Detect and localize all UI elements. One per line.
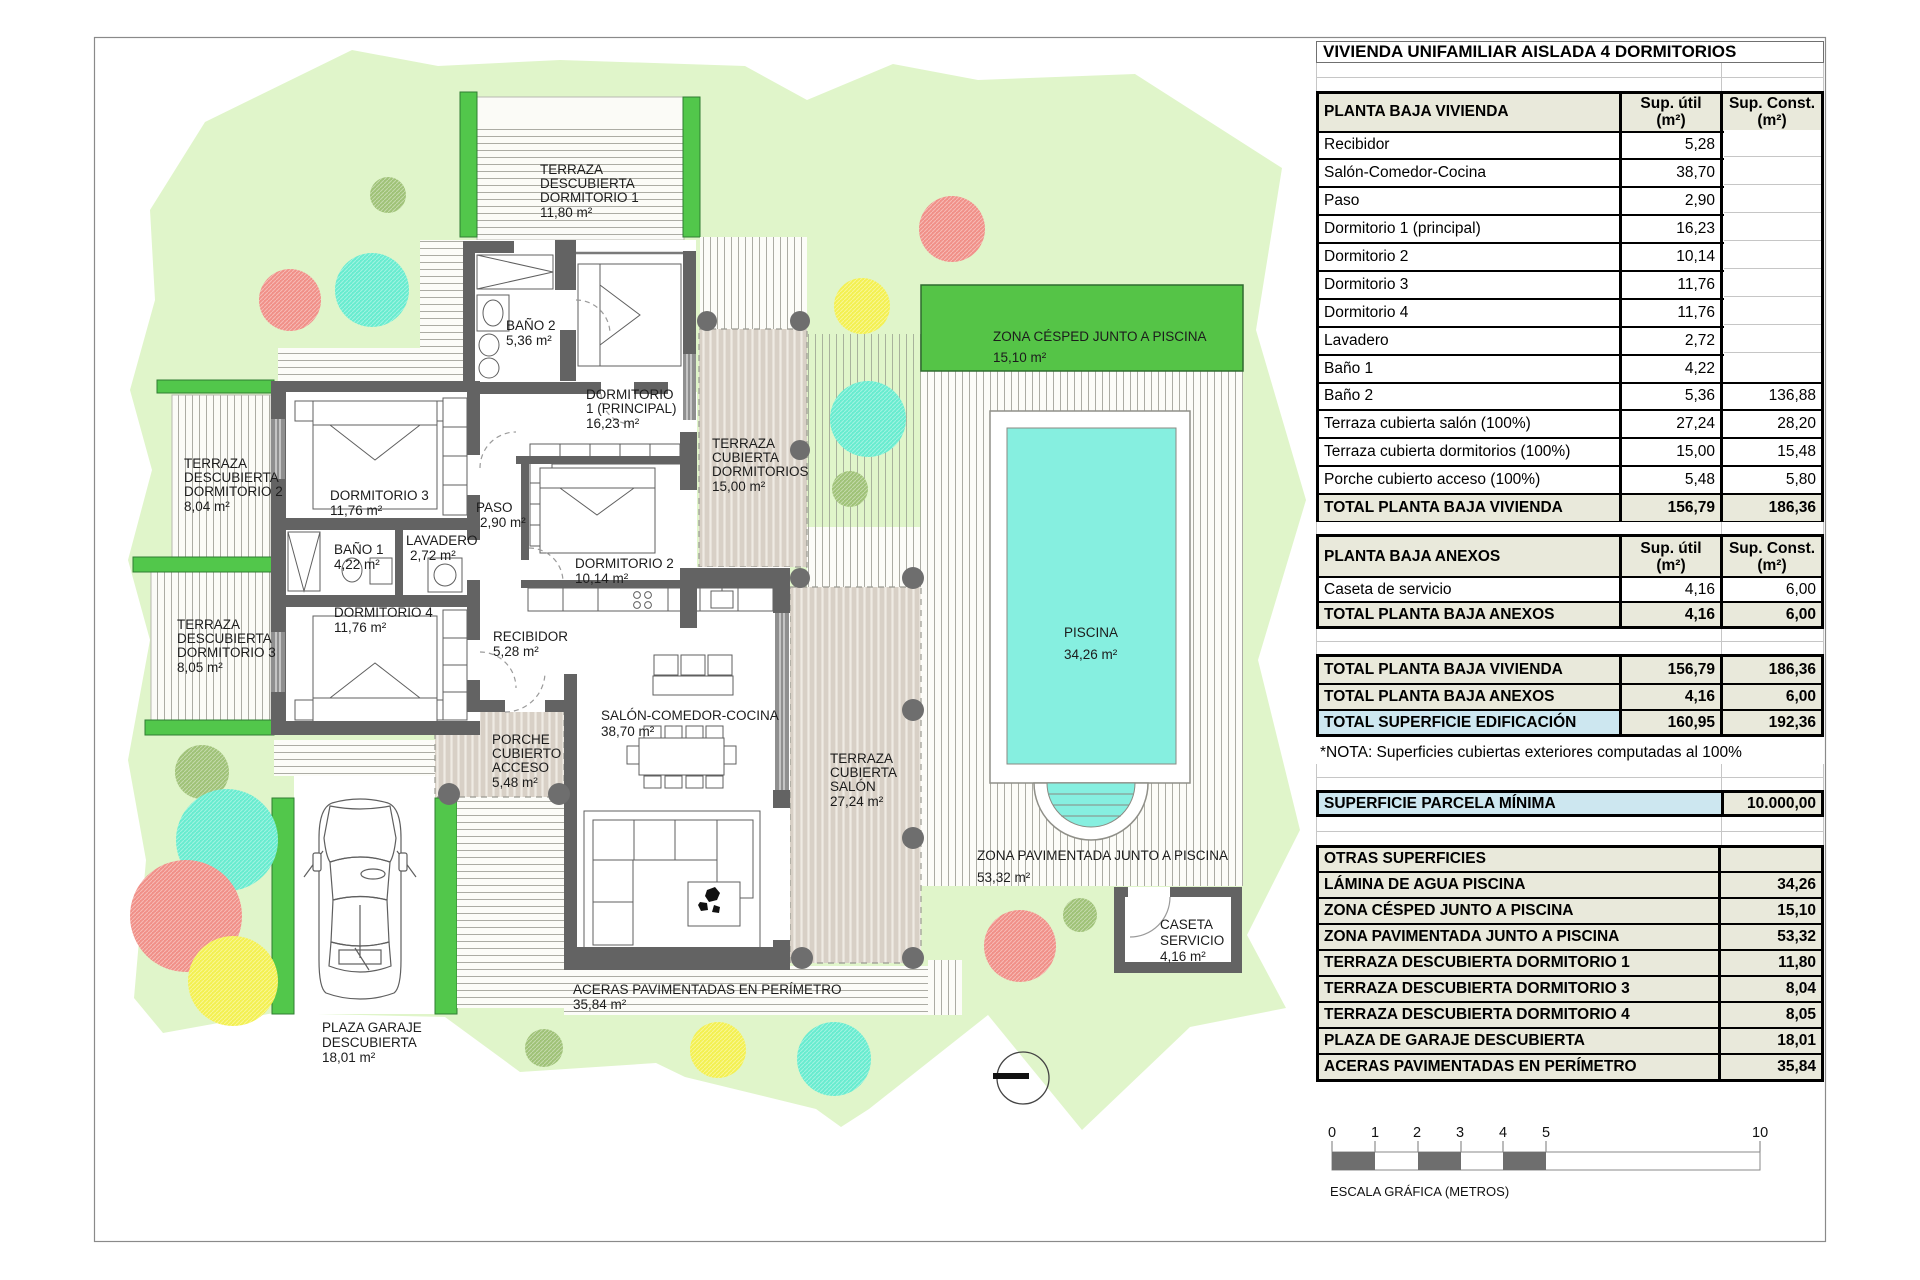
- svg-text:LAVADERO: LAVADERO: [406, 533, 478, 548]
- svg-text:ZONA CÉSPED JUNTO A PISCINA: ZONA CÉSPED JUNTO A PISCINA: [993, 329, 1207, 344]
- svg-text:2,90 m²: 2,90 m²: [480, 515, 526, 530]
- svg-text:2: 2: [1413, 1125, 1421, 1141]
- svg-text:15,10 m²: 15,10 m²: [993, 350, 1047, 365]
- svg-text:PLAZA GARAJE: PLAZA GARAJE: [322, 1020, 422, 1035]
- svg-text:ESCALA GRÁFICA (METROS): ESCALA GRÁFICA (METROS): [1330, 1184, 1509, 1199]
- svg-text:TERRAZA: TERRAZA: [177, 617, 240, 632]
- svg-text:CUBIERTA: CUBIERTA: [830, 765, 897, 780]
- svg-text:PORCHE: PORCHE: [492, 732, 550, 747]
- svg-text:2,72 m²: 2,72 m²: [410, 548, 456, 563]
- svg-text:53,32 m²: 53,32 m²: [977, 870, 1031, 885]
- svg-text:5,28 m²: 5,28 m²: [493, 644, 539, 659]
- svg-text:SERVICIO: SERVICIO: [1160, 933, 1224, 948]
- svg-text:DORMITORIO 3: DORMITORIO 3: [330, 488, 429, 503]
- svg-text:5: 5: [1542, 1125, 1550, 1141]
- svg-text:0: 0: [1328, 1125, 1336, 1141]
- svg-text:TERRAZA: TERRAZA: [540, 162, 603, 177]
- svg-text:ACERAS PAVIMENTADAS EN PERÍMET: ACERAS PAVIMENTADAS EN PERÍMETRO: [573, 982, 842, 997]
- svg-text:11,80 m²: 11,80 m²: [540, 205, 593, 220]
- svg-text:SALÓN: SALÓN: [830, 779, 876, 794]
- svg-text:ZONA PAVIMENTADA JUNTO A PISCI: ZONA PAVIMENTADA JUNTO A PISCINA: [977, 848, 1228, 863]
- svg-text:DORMITORIO 1: DORMITORIO 1: [540, 190, 639, 205]
- svg-text:DORMITORIO 4: DORMITORIO 4: [334, 605, 433, 620]
- svg-text:10: 10: [1752, 1125, 1768, 1141]
- svg-text:38,70 m²: 38,70 m²: [601, 724, 655, 739]
- svg-text:SALÓN-COMEDOR-COCINA: SALÓN-COMEDOR-COCINA: [601, 708, 779, 723]
- svg-text:DORMITORIO: DORMITORIO: [586, 387, 674, 402]
- svg-text:PASO: PASO: [476, 500, 513, 515]
- svg-text:DORMITORIO 2: DORMITORIO 2: [184, 484, 283, 499]
- svg-text:CUBIERTA: CUBIERTA: [712, 450, 779, 465]
- svg-text:16,23 m²: 16,23 m²: [586, 416, 640, 431]
- svg-text:DORMITORIOS: DORMITORIOS: [712, 464, 809, 479]
- svg-text:DESCUBIERTA: DESCUBIERTA: [177, 631, 272, 646]
- svg-text:RECIBIDOR: RECIBIDOR: [493, 629, 568, 644]
- svg-text:TERRAZA: TERRAZA: [830, 751, 893, 766]
- svg-text:8,04 m²: 8,04 m²: [184, 499, 230, 514]
- svg-text:ACCESO: ACCESO: [492, 760, 549, 775]
- svg-text:1 (PRINCIPAL): 1 (PRINCIPAL): [586, 401, 677, 416]
- svg-text:BAÑO 2: BAÑO 2: [506, 318, 556, 333]
- svg-text:11,76 m²: 11,76 m²: [334, 620, 387, 635]
- svg-text:34,26 m²: 34,26 m²: [1064, 647, 1118, 662]
- svg-text:4,16 m²: 4,16 m²: [1160, 949, 1206, 964]
- svg-text:CASETA: CASETA: [1160, 917, 1213, 932]
- svg-text:PISCINA: PISCINA: [1064, 625, 1118, 640]
- svg-text:BAÑO 1: BAÑO 1: [334, 542, 384, 557]
- svg-text:4,22 m²: 4,22 m²: [334, 557, 380, 572]
- svg-text:35,84 m²: 35,84 m²: [573, 997, 627, 1012]
- svg-text:15,00 m²: 15,00 m²: [712, 479, 766, 494]
- svg-text:DESCUBIERTA: DESCUBIERTA: [184, 470, 279, 485]
- svg-text:8,05 m²: 8,05 m²: [177, 660, 223, 675]
- svg-text:TERRAZA: TERRAZA: [184, 456, 247, 471]
- svg-text:CUBIERTO: CUBIERTO: [492, 746, 561, 761]
- svg-text:27,24 m²: 27,24 m²: [830, 794, 884, 809]
- svg-text:DORMITORIO 2: DORMITORIO 2: [575, 556, 674, 571]
- svg-text:4: 4: [1499, 1125, 1507, 1141]
- svg-text:DESCUBIERTA: DESCUBIERTA: [322, 1035, 417, 1050]
- svg-text:5,48 m²: 5,48 m²: [492, 775, 538, 790]
- svg-text:DORMITORIO 3: DORMITORIO 3: [177, 645, 276, 660]
- svg-text:TERRAZA: TERRAZA: [712, 436, 775, 451]
- svg-text:10,14 m²: 10,14 m²: [575, 571, 629, 586]
- svg-text:1: 1: [1371, 1125, 1379, 1141]
- svg-text:DESCUBIERTA: DESCUBIERTA: [540, 176, 635, 191]
- svg-text:5,36 m²: 5,36 m²: [506, 333, 552, 348]
- svg-text:3: 3: [1456, 1125, 1464, 1141]
- svg-text:18,01 m²: 18,01 m²: [322, 1050, 376, 1065]
- svg-text:11,76 m²: 11,76 m²: [330, 503, 383, 518]
